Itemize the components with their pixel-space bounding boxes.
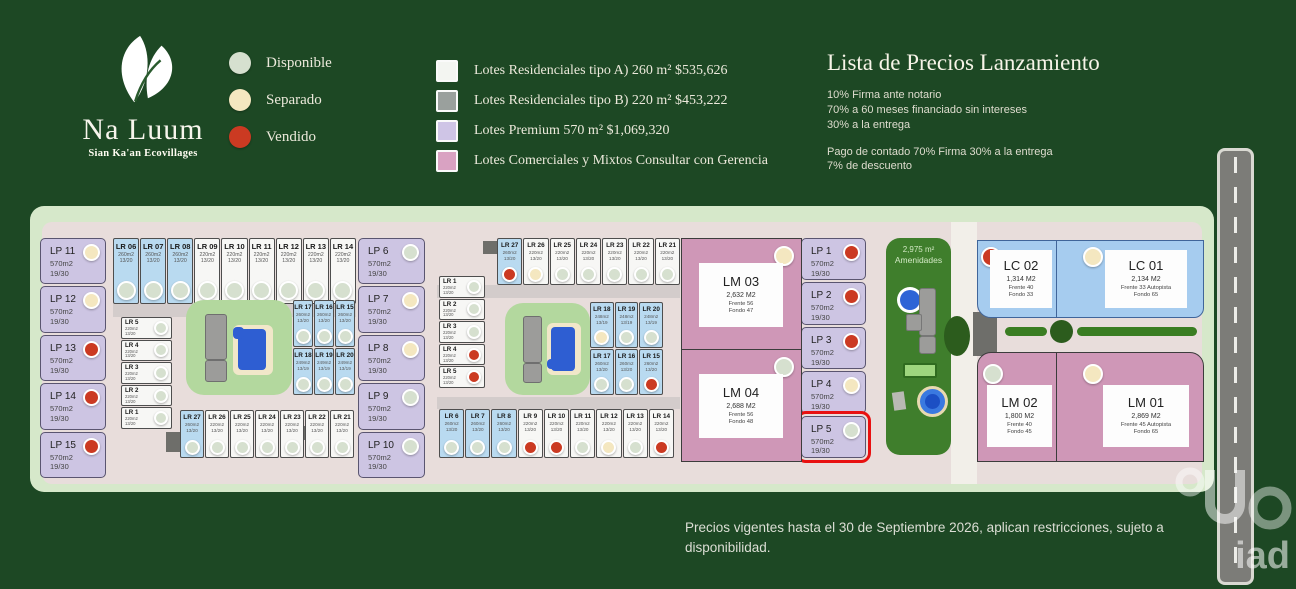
- lot-lr-3[interactable]: LR 3220m213/20: [121, 362, 172, 384]
- lot-lp-2[interactable]: LP 2570m219/30: [801, 282, 866, 324]
- lot-dims: 13/20: [556, 256, 568, 262]
- price-line: Pago de contado 70% Firma 30% a la entre…: [827, 145, 1167, 160]
- lot-dims: 13/20: [443, 381, 456, 386]
- status-dot-separado: [528, 267, 543, 282]
- road-median-circle: [1050, 320, 1073, 343]
- lot-label: LR 26: [208, 414, 225, 422]
- status-dot-disponible: [470, 440, 485, 455]
- building: [205, 360, 227, 382]
- lot-label: LR 06: [116, 242, 136, 252]
- lot-lp-3[interactable]: LP 3570m219/30: [801, 327, 866, 369]
- lot-lm-03[interactable]: LM 032,632 M2Frente 56Fondo 47: [682, 239, 801, 349]
- lot-frente: Frente 45 Autopista: [1121, 422, 1171, 430]
- legend-row-disponible: Disponible: [229, 52, 332, 74]
- lot-lr-3[interactable]: LR 3220m213/20: [439, 321, 485, 343]
- status-dot-disponible: [317, 377, 332, 392]
- status-dot-disponible: [154, 366, 168, 380]
- lot-lr-23[interactable]: LR 23220m213/20: [280, 410, 304, 458]
- lot-label: LR 09: [197, 242, 217, 252]
- lot-dims: 13/20: [125, 332, 138, 337]
- status-dot-disponible: [644, 330, 659, 345]
- lot-label: LR 21: [659, 242, 676, 250]
- status-dot-vendido: [843, 244, 860, 261]
- lot-dims: 13/20: [443, 313, 456, 318]
- comercial-swatch: [436, 150, 458, 172]
- lot-lr-11[interactable]: LR 11220m213/20: [570, 409, 595, 458]
- footer-note: Precios vigentes hasta el 30 de Septiemb…: [685, 518, 1190, 559]
- lot-lr-16[interactable]: LR 16260m213/20: [314, 300, 334, 347]
- lot-lr-5[interactable]: LR 5220m213/20: [439, 366, 485, 388]
- status-dot-disponible: [296, 329, 311, 344]
- status-dot-vendido: [467, 348, 481, 362]
- legend-label: Separado: [266, 92, 322, 109]
- lot-text: LR 5220m213/20: [443, 368, 456, 386]
- lot-lr-21[interactable]: LR 21220m213/20: [655, 238, 680, 285]
- lot-label: LR 11: [574, 413, 591, 421]
- lot-dims: 13/19: [645, 320, 657, 326]
- lot-lr-26[interactable]: LR 26220m213/20: [523, 238, 548, 285]
- lot-lc-02-wrap: LC 021,314 M2Frente 40Fondo 33: [977, 240, 1058, 318]
- status-dot-disponible: [594, 377, 609, 392]
- amenities-label: Amenidades: [886, 255, 951, 266]
- price-list-title: Lista de Precios Lanzamiento: [827, 50, 1167, 76]
- lot-lp-11[interactable]: LP 11570m219/30: [40, 238, 106, 284]
- status-dot-separado: [402, 341, 419, 358]
- lot-lr-09[interactable]: LR 09220m213/20: [194, 238, 220, 304]
- pool: [925, 394, 940, 409]
- lot-lm-01[interactable]: LM 012,869 M2Frente 45 AutopistaFondo 65: [1057, 353, 1203, 461]
- lot-dims: 13/20: [656, 427, 668, 433]
- block1-left-column: LR 5220m213/20LR 4220m213/20LR 3220m213/…: [121, 317, 172, 429]
- lot-lp-13[interactable]: LP 13570m219/30: [40, 335, 106, 381]
- lot-lr-08[interactable]: LR 08260m213/20: [167, 238, 193, 304]
- lot-dims: 13/20: [125, 354, 138, 359]
- lot-lr-24[interactable]: LR 24220m213/20: [576, 238, 601, 285]
- lot-fondo: Fondo 65: [1134, 429, 1159, 437]
- lot-dims: 13/20: [336, 428, 348, 434]
- status-dot-disponible: [843, 422, 860, 439]
- lot-lp-14[interactable]: LP 14570m219/30: [40, 383, 106, 429]
- lot-lp-10[interactable]: LP 10570m219/30: [358, 432, 425, 478]
- lot-lr-10[interactable]: LR 10220m213/20: [544, 409, 569, 458]
- lot-fondo: Fondo 47: [729, 308, 754, 316]
- status-dot-disponible: [467, 302, 481, 316]
- lot-area: 1,314 M2: [1006, 275, 1035, 284]
- status-dot-disponible: [296, 377, 311, 392]
- status-dot-disponible: [575, 440, 590, 455]
- brand-subtitle: Sian Ka'an Ecovillages: [58, 148, 228, 159]
- lot-lr-9[interactable]: LR 9220m213/20: [518, 409, 543, 458]
- block1-courtyard: [186, 300, 292, 395]
- lot-text: LR 2220m213/20: [443, 301, 456, 319]
- price-list: Lista de Precios Lanzamiento 10% Firma a…: [827, 50, 1167, 174]
- lot-label: LR 7: [471, 413, 485, 421]
- lot-label: LM 02: [1001, 395, 1037, 411]
- lot-label: LR 21: [333, 414, 350, 422]
- lot-dims: 13/20: [125, 422, 138, 427]
- lot-label: LR 20: [336, 352, 353, 360]
- site-plan-canvas: Na Luum Sian Ka'an Ecovillages Disponibl…: [0, 0, 1296, 589]
- lot-lr-07[interactable]: LR 07260m213/20: [140, 238, 166, 304]
- lot-lr-2[interactable]: LR 2220m213/20: [439, 299, 485, 321]
- lot-dims: 13/20: [609, 256, 621, 262]
- lot-lp-5[interactable]: LP 5570m219/30: [801, 416, 866, 458]
- status-dot-disponible: [467, 280, 481, 294]
- lot-label: LR 22: [632, 242, 649, 250]
- lot-area: 570m2: [811, 259, 865, 269]
- lot-label: LR 6: [445, 413, 459, 421]
- lot-text: LR 1220m213/20: [443, 278, 456, 296]
- lot-label: LR 15: [642, 353, 659, 361]
- lot-text: LC 021,314 M2Frente 40Fondo 33: [990, 250, 1052, 308]
- iad-watermark-text: iad: [1168, 541, 1294, 571]
- lot-lr-20[interactable]: LR 20249m213/19: [335, 348, 355, 395]
- lot-lr-19[interactable]: LR 19249m213/19: [314, 348, 334, 395]
- lot-dims: 13/20: [174, 258, 187, 265]
- amenities-size: 2,975 m²: [886, 245, 951, 255]
- lot-dims: 13/20: [635, 256, 647, 262]
- status-dot-disponible: [338, 329, 353, 344]
- lot-dims: 19/30: [368, 414, 424, 424]
- status-dot-separado: [1083, 364, 1103, 384]
- lot-dims: 19/30: [811, 358, 865, 368]
- lot-dims: 13/20: [446, 427, 458, 433]
- lot-text: LM 012,869 M2Frente 45 AutopistaFondo 65: [1103, 385, 1189, 447]
- lot-lr-16[interactable]: LR 16260m213/20: [615, 349, 639, 395]
- legend-row-separado: Separado: [229, 89, 332, 111]
- block1-right-bottom-row: LR 18249m213/19LR 19249m213/19LR 20249m2…: [293, 348, 355, 395]
- status-dot-separado: [1083, 247, 1103, 267]
- lot-lr-06[interactable]: LR 06260m213/20: [113, 238, 139, 304]
- lot-dims: 13/20: [645, 367, 657, 373]
- lot-lr-10[interactable]: LR 10220m213/20: [221, 238, 247, 304]
- lot-lp-15[interactable]: LP 15570m219/30: [40, 432, 106, 478]
- lot-label: LR 13: [306, 242, 326, 252]
- lot-dims: 13/20: [530, 256, 542, 262]
- lot-label: LR 25: [233, 414, 250, 422]
- lot-lr-24[interactable]: LR 24220m213/20: [255, 410, 279, 458]
- lot-lr-26[interactable]: LR 26220m213/20: [205, 410, 229, 458]
- lot-area: 570m2: [368, 404, 424, 414]
- block1-top-row: LR 06260m213/20LR 07260m213/20LR 08260m2…: [113, 238, 356, 304]
- lot-area: 1,800 M2: [1005, 412, 1034, 421]
- lot-label: LM 01: [1128, 395, 1164, 411]
- status-dot-separado: [83, 244, 100, 261]
- lot-label: LR 12: [600, 413, 617, 421]
- lot-text: LR 3220m213/20: [443, 323, 456, 341]
- lot-label: LR 15: [336, 304, 353, 312]
- lot-lr-1[interactable]: LR 1220m213/20: [439, 276, 485, 298]
- lot-label: LR 25: [554, 242, 571, 250]
- lot-lr-14[interactable]: LR 14220m213/20: [330, 238, 356, 304]
- lot-area: 570m2: [50, 307, 105, 317]
- legend-row-type-a: Lotes Residenciales tipo A) 260 m² $535,…: [436, 60, 768, 82]
- lot-dims: 13/20: [603, 427, 615, 433]
- lot-area: 570m2: [368, 259, 424, 269]
- lot-label: LR 24: [580, 242, 597, 250]
- lot-area: 2,688 M2: [726, 402, 755, 411]
- lot-lr-21[interactable]: LR 21220m213/20: [330, 410, 354, 458]
- lot-dims: 13/20: [125, 377, 138, 382]
- lot-dims: 19/30: [811, 269, 865, 279]
- lot-dims: 13/20: [228, 258, 241, 265]
- price-list-body: 10% Firma ante notario 70% a 60 meses fi…: [827, 88, 1167, 174]
- lot-lm-02[interactable]: LM 021,800 M2Frente 40Fondo 45: [978, 353, 1057, 461]
- lot-lr-7[interactable]: LR 7260m213/20: [465, 409, 490, 458]
- status-dot-disponible: [619, 377, 634, 392]
- status-dot-disponible: [497, 440, 512, 455]
- lot-lr-25[interactable]: LR 25220m213/20: [230, 410, 254, 458]
- lot-label: LR 27: [183, 414, 200, 422]
- lot-dims: 13/20: [186, 428, 198, 434]
- block2-bottom-row: LR 6260m213/20LR 7260m213/20LR 8260m213/…: [439, 409, 674, 458]
- status-dot-disponible: [983, 364, 1003, 384]
- lot-frente: Frente 40: [1009, 285, 1034, 293]
- garden-sign: [903, 363, 937, 378]
- lot-label: LR 23: [606, 242, 623, 250]
- lot-text: LC 012,134 M2Frente 33 AutopistaFondo 65: [1105, 250, 1187, 308]
- lot-area: 2,869 M2: [1131, 412, 1160, 421]
- lot-dims: 13/20: [309, 258, 322, 265]
- legend-label: Lotes Comerciales y Mixtos Consultar con…: [474, 153, 768, 169]
- legend-row-type-b: Lotes Residenciales tipo B) 220 m² $453,…: [436, 90, 768, 112]
- lot-lr-20[interactable]: LR 20248m213/19: [639, 302, 663, 348]
- status-dot-disponible: [198, 281, 217, 300]
- lot-lr-18[interactable]: LR 18249m213/19: [293, 348, 313, 395]
- status-dot-disponible: [225, 281, 244, 300]
- lot-label: LR 17: [593, 353, 610, 361]
- lot-dims: 13/20: [297, 318, 309, 324]
- legend-label: Vendido: [266, 129, 316, 146]
- lot-dims: 13/20: [211, 428, 223, 434]
- lot-lc-01[interactable]: LC 012,134 M2Frente 33 AutopistaFondo 65: [1057, 241, 1203, 317]
- lot-dims: 13/20: [443, 359, 456, 364]
- lot-lr-27[interactable]: LR 27260m213/20: [497, 238, 522, 285]
- lot-lr-15[interactable]: LR 15260m213/20: [639, 349, 663, 395]
- brand-logo: Na Luum Sian Ka'an Ecovillages: [58, 32, 228, 159]
- lot-dims: 13/20: [472, 427, 484, 433]
- lot-label: LR 12: [278, 242, 298, 252]
- lot-dims: 19/30: [368, 269, 424, 279]
- status-dot-separado: [601, 440, 616, 455]
- lot-dims: 13/20: [120, 258, 133, 265]
- lot-dims: 13/20: [201, 258, 214, 265]
- lot-lp-1[interactable]: LP 1570m219/30: [801, 238, 866, 280]
- lot-lr-11[interactable]: LR 11220m213/20: [249, 238, 275, 304]
- lot-fondo: Fondo 45: [1007, 429, 1032, 437]
- lot-text: LR 2220m213/20: [125, 387, 138, 405]
- clubhouse-building: [906, 314, 922, 331]
- lot-label: LR 16: [618, 353, 635, 361]
- lot-text: LM 021,800 M2Frente 40Fondo 45: [987, 385, 1052, 447]
- lot-text: LR 1220m213/20: [125, 409, 138, 427]
- lot-dims: 13/20: [498, 427, 510, 433]
- lot-area: 2,134 M2: [1131, 275, 1160, 284]
- lot-lp-6[interactable]: LP 6570m219/30: [358, 238, 425, 284]
- lot-lp-12[interactable]: LP 12570m219/30: [40, 286, 106, 332]
- lot-dims: 13/20: [125, 400, 138, 405]
- status-dot-disponible: [444, 440, 459, 455]
- lot-lr-17[interactable]: LR 17260m213/20: [293, 300, 313, 347]
- lot-text: LR 3220m213/20: [125, 364, 138, 382]
- lot-lp-4[interactable]: LP 4570m219/30: [801, 371, 866, 413]
- separado-dot-icon: [229, 89, 251, 111]
- lot-label: LR 08: [170, 242, 190, 252]
- lot-lr-22[interactable]: LR 22220m213/20: [305, 410, 329, 458]
- status-dot-disponible: [154, 389, 168, 403]
- lot-dims: 13/20: [583, 256, 595, 262]
- entrance-stub: [483, 241, 497, 254]
- status-dot-disponible: [333, 281, 352, 300]
- status-dot-disponible: [607, 267, 622, 282]
- lot-lr-5[interactable]: LR 5220m213/20: [121, 317, 172, 339]
- driveway: [437, 397, 680, 409]
- lot-dims: 19/30: [50, 366, 105, 376]
- roundabout-median: [944, 316, 970, 356]
- lot-lr-22[interactable]: LR 22220m213/20: [628, 238, 653, 285]
- lot-dims: 13/20: [286, 428, 298, 434]
- block1-bottom-row: LR 27260m213/20LR 26220m213/20LR 25220m2…: [180, 410, 354, 458]
- deck-chair: [892, 391, 906, 410]
- lot-dims: 13/20: [504, 256, 516, 262]
- lot-lr-6[interactable]: LR 6260m213/20: [439, 409, 464, 458]
- lot-dims: 13/20: [311, 428, 323, 434]
- status-dot-disponible: [317, 329, 332, 344]
- status-dot-disponible: [310, 440, 325, 455]
- lot-lr-13[interactable]: LR 13220m213/20: [303, 238, 329, 304]
- lot-lr-18[interactable]: LR 18248m213/19: [590, 302, 614, 348]
- status-dot-disponible: [402, 244, 419, 261]
- lot-dims: 19/30: [50, 414, 105, 424]
- lot-lm-02-wrap: LM 021,800 M2Frente 40Fondo 45: [977, 352, 1058, 462]
- lot-area: 570m2: [811, 303, 865, 313]
- status-dot-vendido: [549, 440, 564, 455]
- lot-dims: 13/20: [339, 318, 351, 324]
- price-line: 30% a la entrega: [827, 118, 1167, 133]
- pool: [233, 327, 244, 339]
- status-dot-separado: [594, 330, 609, 345]
- lot-dims: 19/30: [50, 269, 105, 279]
- vendido-dot-icon: [229, 126, 251, 148]
- lot-label: LC 02: [1004, 258, 1039, 274]
- building: [523, 363, 542, 383]
- lot-area: 570m2: [811, 437, 865, 447]
- lot-lm-01-wrap: LM 012,869 M2Frente 45 AutopistaFondo 65: [1056, 352, 1204, 462]
- lot-label: LR 23: [283, 414, 300, 422]
- status-dot-disponible: [144, 281, 163, 300]
- lot-lr-14[interactable]: LR 14220m213/20: [649, 409, 674, 458]
- status-dot-disponible: [628, 440, 643, 455]
- lot-dims: 19/30: [368, 462, 424, 472]
- lot-label: LR 19: [315, 352, 332, 360]
- lot-label: LR 10: [548, 413, 565, 421]
- lot-label: LR 19: [618, 306, 635, 314]
- lot-lr-13[interactable]: LR 13220m213/20: [623, 409, 648, 458]
- lp-right-column: LP 1570m219/30LP 2570m219/30LP 3570m219/…: [801, 238, 866, 458]
- lot-dims: 13/20: [629, 427, 641, 433]
- status-dot-disponible: [252, 281, 271, 300]
- status-dot-vendido: [83, 341, 100, 358]
- lot-label: LR 8: [497, 413, 511, 421]
- lot-lr-2[interactable]: LR 2220m213/20: [121, 385, 172, 407]
- status-dot-disponible: [185, 440, 200, 455]
- status-dot-disponible: [634, 267, 649, 282]
- lot-dims: 13/20: [261, 428, 273, 434]
- pool: [900, 290, 920, 310]
- lot-lp-8[interactable]: LP 8570m219/30: [358, 335, 425, 381]
- lot-dims: 13/20: [282, 258, 295, 265]
- status-dot-disponible: [154, 321, 168, 335]
- lot-lr-12[interactable]: LR 12220m213/20: [596, 409, 621, 458]
- lot-dims: 19/30: [811, 446, 865, 456]
- lot-lm-04[interactable]: LM 042,688 M2Frente 56Fondo 48: [682, 350, 801, 461]
- price-line: 7% de descuento: [827, 159, 1167, 174]
- block2-right-bottom-row: LR 17260m213/20LR 16260m213/20LR 15260m2…: [590, 349, 663, 395]
- lot-text: LR 5220m213/20: [125, 319, 138, 337]
- lot-dims: 13/19: [318, 366, 330, 372]
- lot-lc-02[interactable]: LC 021,314 M2Frente 40Fondo 33: [978, 241, 1057, 317]
- lot-lr-1[interactable]: LR 1220m213/20: [121, 407, 172, 429]
- status-dot-vendido: [654, 440, 669, 455]
- leaf-logo-icon: [100, 32, 186, 110]
- lot-label: LR 24: [258, 414, 275, 422]
- lot-label: LM 03: [723, 274, 759, 290]
- lot-area: 570m2: [368, 307, 424, 317]
- lot-label: LR 16: [315, 304, 332, 312]
- lot-dims: 19/30: [50, 462, 105, 472]
- lot-dims: 13/20: [147, 258, 160, 265]
- status-dot-disponible: [335, 440, 350, 455]
- lot-dims: 13/19: [339, 366, 351, 372]
- lot-lr-4[interactable]: LR 4220m213/20: [439, 344, 485, 366]
- lot-label: LR 14: [333, 242, 353, 252]
- legend-label: Lotes Residenciales tipo A) 260 m² $535,…: [474, 63, 727, 79]
- iad-logo-icon: [1174, 466, 1294, 536]
- status-dot-disponible: [619, 330, 634, 345]
- road-stub: [973, 312, 997, 356]
- status-dot-disponible: [467, 325, 481, 339]
- lot-frente: Frente 56: [729, 412, 754, 420]
- lot-lr-23[interactable]: LR 23220m213/20: [602, 238, 627, 285]
- lot-lr-15[interactable]: LR 15260m213/20: [335, 300, 355, 347]
- lot-lr-17[interactable]: LR 17260m213/20: [590, 349, 614, 395]
- lot-fondo: Fondo 65: [1134, 292, 1159, 300]
- status-dot-disponible: [117, 281, 136, 300]
- status-dot-disponible: [581, 267, 596, 282]
- lot-fondo: Fondo 48: [729, 419, 754, 427]
- lot-lr-12[interactable]: LR 12220m213/20: [276, 238, 302, 304]
- lot-lr-25[interactable]: LR 25220m213/20: [550, 238, 575, 285]
- lot-lm-03-wrap: LM 032,632 M2Frente 56Fondo 47: [681, 238, 802, 350]
- spacer: [827, 133, 1167, 145]
- lot-text: LM 042,688 M2Frente 56Fondo 48: [699, 374, 783, 438]
- status-dot-vendido: [843, 333, 860, 350]
- lot-dims: 13/20: [236, 428, 248, 434]
- lot-lp-7[interactable]: LP 7570m219/30: [358, 286, 425, 332]
- lot-dims: 13/19: [596, 320, 608, 326]
- legend-label: Lotes Premium 570 m² $1,069,320: [474, 123, 670, 139]
- lot-lr-8[interactable]: LR 8260m213/20: [491, 409, 516, 458]
- lot-lr-27[interactable]: LR 27260m213/20: [180, 410, 204, 458]
- status-dot-disponible: [338, 377, 353, 392]
- lot-label: LR 17: [294, 304, 311, 312]
- lot-area: 570m2: [811, 392, 865, 402]
- lot-lr-4[interactable]: LR 4220m213/20: [121, 340, 172, 362]
- status-dot-disponible: [555, 267, 570, 282]
- lot-lp-9[interactable]: LP 9570m219/30: [358, 383, 425, 429]
- lot-lr-19[interactable]: LR 19248m213/19: [615, 302, 639, 348]
- status-dot-vendido: [523, 440, 538, 455]
